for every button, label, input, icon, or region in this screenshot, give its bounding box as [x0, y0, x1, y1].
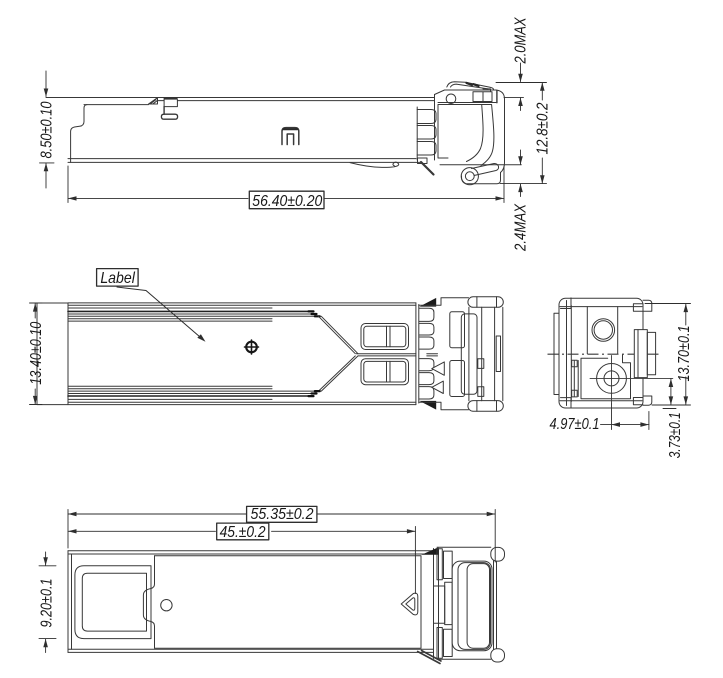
svg-text:4.97±0.1: 4.97±0.1	[550, 416, 600, 433]
svg-text:56.40±0.20: 56.40±0.20	[252, 193, 322, 210]
svg-text:2.0MAX: 2.0MAX	[513, 16, 530, 64]
svg-text:12.8±0.2: 12.8±0.2	[535, 102, 552, 154]
svg-text:9.20±0.1: 9.20±0.1	[39, 579, 56, 628]
svg-text:45.±0.2: 45.±0.2	[220, 524, 266, 541]
svg-text:Label: Label	[100, 270, 135, 287]
svg-text:8.50±0.10: 8.50±0.10	[39, 101, 56, 158]
svg-text:13.40±0.10: 13.40±0.10	[28, 322, 45, 385]
svg-text:55.35±0.2: 55.35±0.2	[251, 506, 314, 523]
svg-text:2.4MAX: 2.4MAX	[513, 203, 530, 252]
svg-text:13.70±0.1: 13.70±0.1	[676, 326, 693, 382]
svg-text:3.73±0.1: 3.73±0.1	[667, 412, 684, 458]
